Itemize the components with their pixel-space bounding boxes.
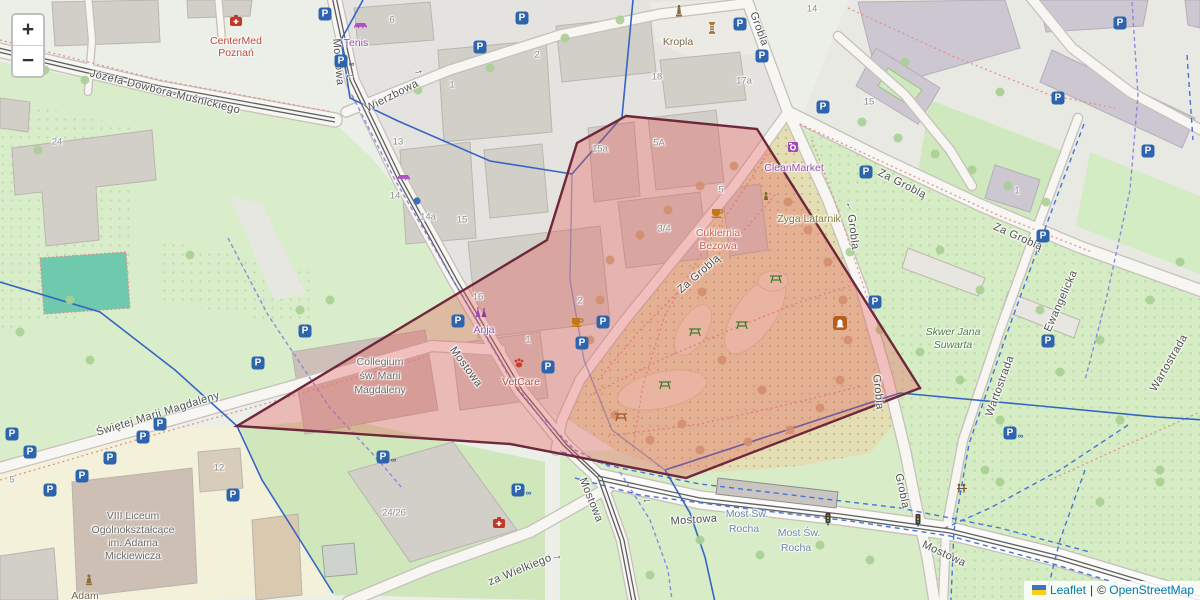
tree: [486, 64, 495, 73]
copyright-symbol: ©: [1097, 583, 1106, 597]
tree: [1156, 478, 1165, 487]
tree: [816, 541, 825, 550]
tree: [1096, 336, 1105, 345]
tree: [646, 571, 655, 580]
tree: [981, 466, 990, 475]
tree: [1056, 368, 1065, 377]
tree: [996, 416, 1005, 425]
tree: [1042, 198, 1051, 207]
tree: [976, 286, 985, 295]
tree: [996, 478, 1005, 487]
road: [218, 0, 222, 40]
tree: [1096, 498, 1105, 507]
tree: [936, 246, 945, 255]
tree: [916, 348, 925, 357]
tree: [34, 146, 43, 155]
map-canvas[interactable]: Józefa Dowbora-MuśnickiegoMostowaMostowa…: [0, 0, 1200, 600]
tree: [81, 76, 90, 85]
ukraine-flag-icon: [1032, 585, 1046, 595]
tree: [326, 296, 335, 305]
attribution-separator: |: [1090, 583, 1093, 597]
basemap: [0, 0, 1200, 600]
zoom-control: + −: [11, 13, 45, 78]
tree: [956, 376, 965, 385]
tree: [16, 328, 25, 337]
osm-link[interactable]: OpenStreetMap: [1109, 583, 1194, 597]
tree: [561, 34, 570, 43]
tree: [1004, 182, 1013, 191]
tree: [1036, 306, 1045, 315]
tree: [968, 166, 977, 175]
tree: [186, 251, 195, 260]
tree: [296, 306, 305, 315]
tree: [696, 536, 705, 545]
tree: [931, 150, 940, 159]
tree: [616, 16, 625, 25]
tree: [858, 118, 867, 127]
tree: [1156, 466, 1165, 475]
leaflet-link[interactable]: Leaflet: [1050, 583, 1086, 597]
tree: [846, 248, 855, 257]
zoom-out-button[interactable]: −: [13, 46, 43, 76]
tree: [756, 551, 765, 560]
tree: [1176, 258, 1185, 267]
tree: [86, 356, 95, 365]
tree: [66, 296, 75, 305]
tree: [414, 86, 423, 95]
zoom-in-button[interactable]: +: [13, 15, 43, 46]
attribution-bar: Leaflet|© OpenStreetMap: [1024, 581, 1200, 600]
tree: [866, 556, 875, 565]
tree: [894, 134, 903, 143]
tree: [1146, 296, 1155, 305]
tree: [901, 58, 910, 67]
tree: [996, 88, 1005, 97]
tree: [1116, 416, 1125, 425]
